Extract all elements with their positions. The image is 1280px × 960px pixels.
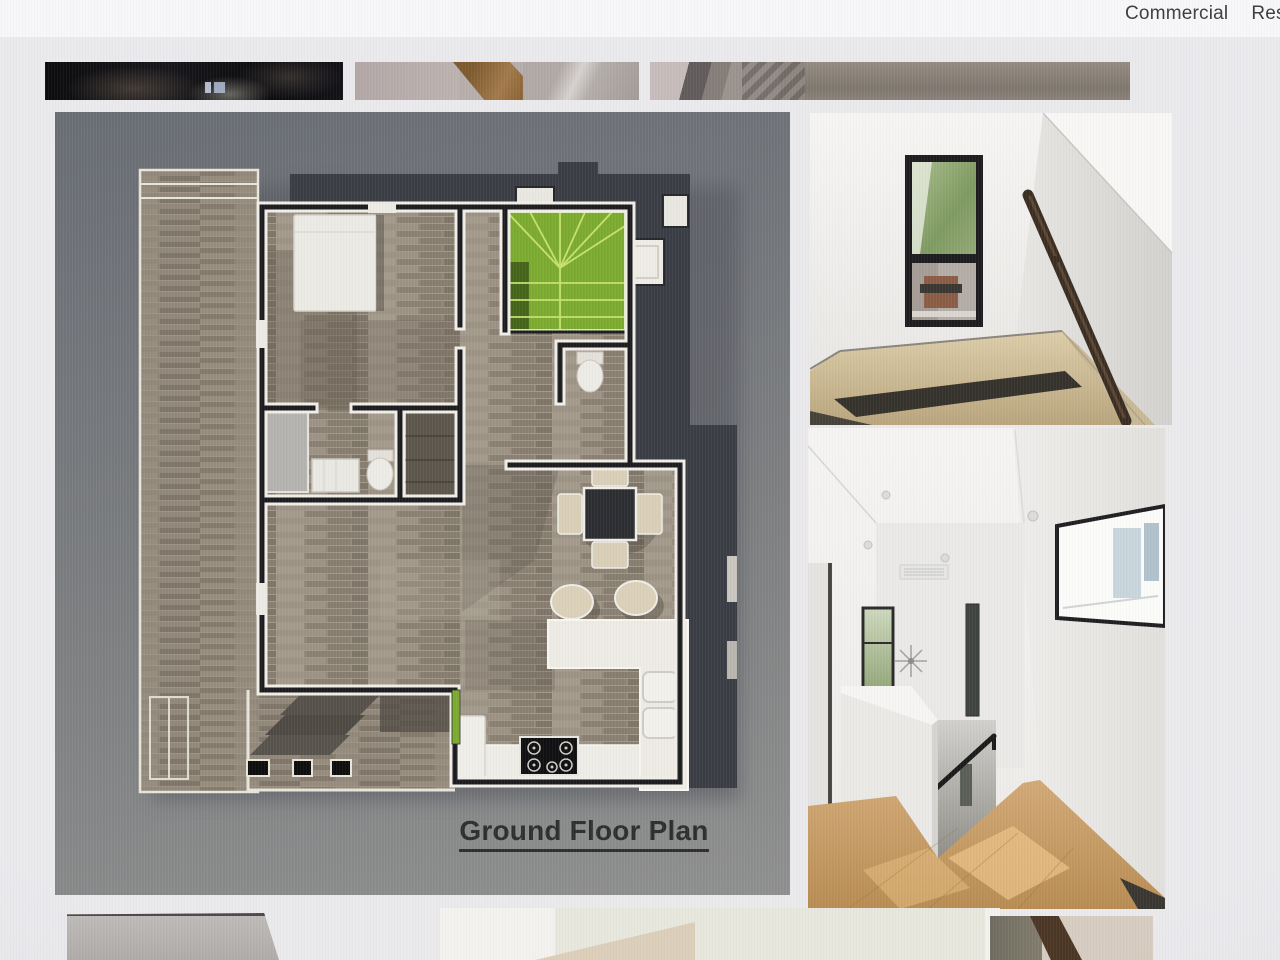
floor-plan-panel[interactable]: Ground Floor Plan [55, 112, 790, 895]
deck-posts [247, 760, 351, 776]
air-vent [900, 565, 948, 579]
clerestory-window [1057, 506, 1165, 626]
photo-stair-landing-window[interactable] [810, 113, 1172, 425]
photo-upper-hallway[interactable] [808, 428, 1165, 909]
counter-edge [67, 913, 279, 916]
sign-glyph [205, 82, 231, 93]
window-black-frame [905, 155, 983, 327]
green-accent-strip [452, 690, 460, 744]
wall-area [355, 62, 459, 100]
site-header [0, 0, 1280, 38]
floor-plan-rendering [125, 135, 795, 835]
main-nav: Commercial Res [1125, 3, 1280, 25]
gallery-thumbnail-stair-base[interactable] [355, 62, 639, 100]
bedroom-bed [294, 215, 384, 311]
narrow-window-slit [966, 604, 979, 716]
stair-landing-scene [810, 113, 1172, 425]
gallery-thumbnail-dark-exterior[interactable] [45, 62, 343, 100]
plan-title: Ground Floor Plan [434, 815, 734, 847]
tall-window [863, 608, 893, 688]
carpet-area [523, 62, 639, 100]
nav-item-residential[interactable]: Res [1251, 3, 1280, 25]
stair-zigzag [742, 62, 812, 100]
deck-walkway [140, 170, 258, 792]
staircase-green [505, 212, 628, 332]
gallery-thumbnail-counter[interactable] [67, 913, 279, 960]
nav-item-commercial[interactable]: Commercial [1125, 3, 1228, 25]
wall-gradient [805, 62, 1130, 100]
gallery-thumbnail-wood-beam[interactable] [990, 916, 1153, 960]
gallery-thumbnail-white-interior[interactable] [440, 908, 1000, 960]
powder-room-toilet [577, 352, 603, 392]
gallery-thumbnail-staircase[interactable] [650, 62, 1130, 100]
hallway-scene [808, 428, 1165, 909]
